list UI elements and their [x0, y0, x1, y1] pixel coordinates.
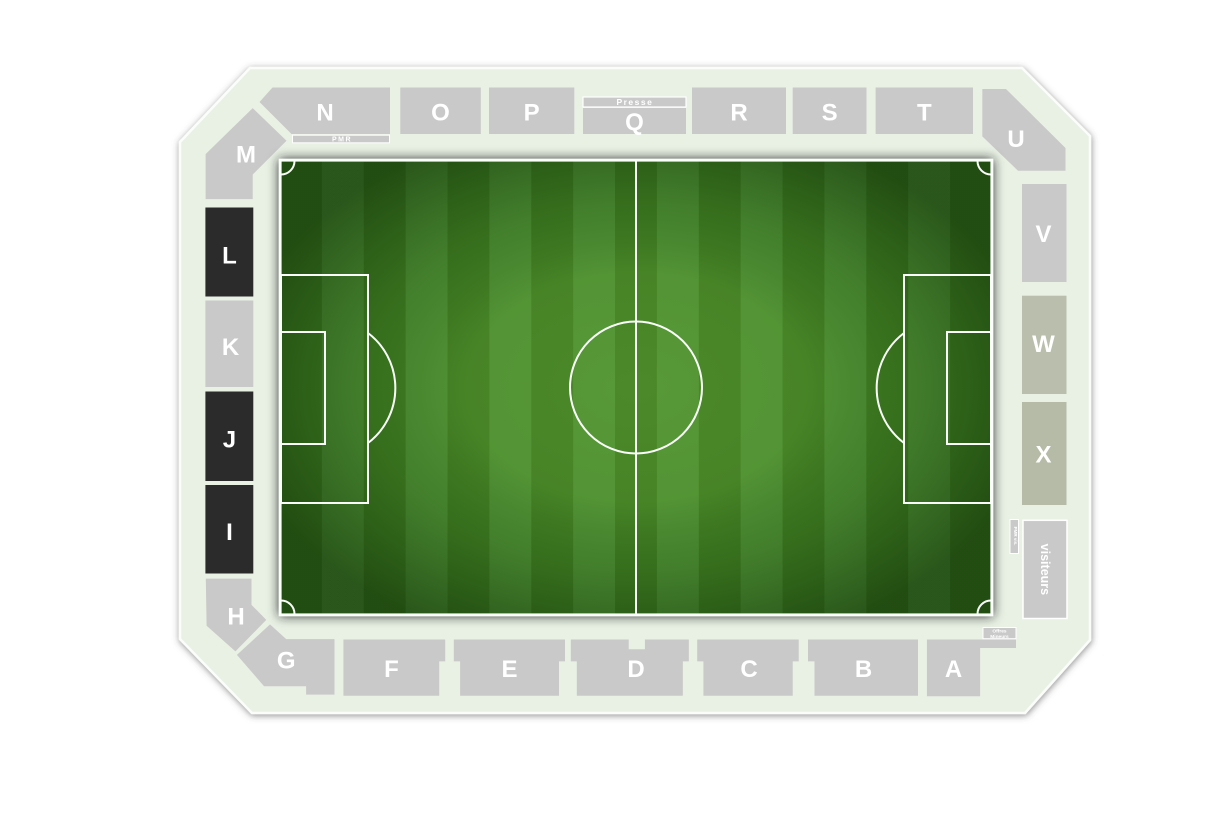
svg-text:H: H	[227, 604, 244, 631]
svg-text:C: C	[740, 656, 757, 683]
svg-text:V: V	[1035, 221, 1051, 248]
svg-text:I: I	[226, 519, 233, 546]
svg-text:Offres: Offres	[992, 629, 1006, 635]
svg-text:Mineurs: Mineurs	[990, 634, 1009, 640]
svg-text:B: B	[855, 656, 872, 683]
svg-text:N: N	[316, 100, 333, 127]
svg-text:PMR: PMR	[332, 137, 352, 144]
svg-text:M: M	[236, 142, 256, 169]
svg-text:U: U	[1007, 126, 1024, 153]
svg-text:PMR vis.: PMR vis.	[1013, 527, 1018, 546]
svg-text:K: K	[222, 334, 240, 361]
svg-text:visiteurs: visiteurs	[1038, 544, 1052, 595]
svg-text:Presse: Presse	[616, 97, 653, 107]
svg-text:G: G	[277, 647, 296, 674]
svg-text:S: S	[822, 100, 838, 127]
svg-text:J: J	[223, 427, 236, 454]
svg-text:D: D	[627, 656, 644, 683]
svg-text:T: T	[917, 100, 932, 127]
svg-text:A: A	[945, 656, 962, 683]
svg-text:P: P	[524, 100, 540, 127]
svg-text:L: L	[222, 243, 237, 270]
svg-text:X: X	[1035, 442, 1051, 469]
svg-text:F: F	[384, 656, 399, 683]
svg-text:E: E	[501, 656, 517, 683]
svg-text:R: R	[730, 100, 747, 127]
svg-text:W: W	[1032, 331, 1055, 358]
svg-text:Q: Q	[625, 109, 644, 136]
svg-text:O: O	[431, 100, 450, 127]
